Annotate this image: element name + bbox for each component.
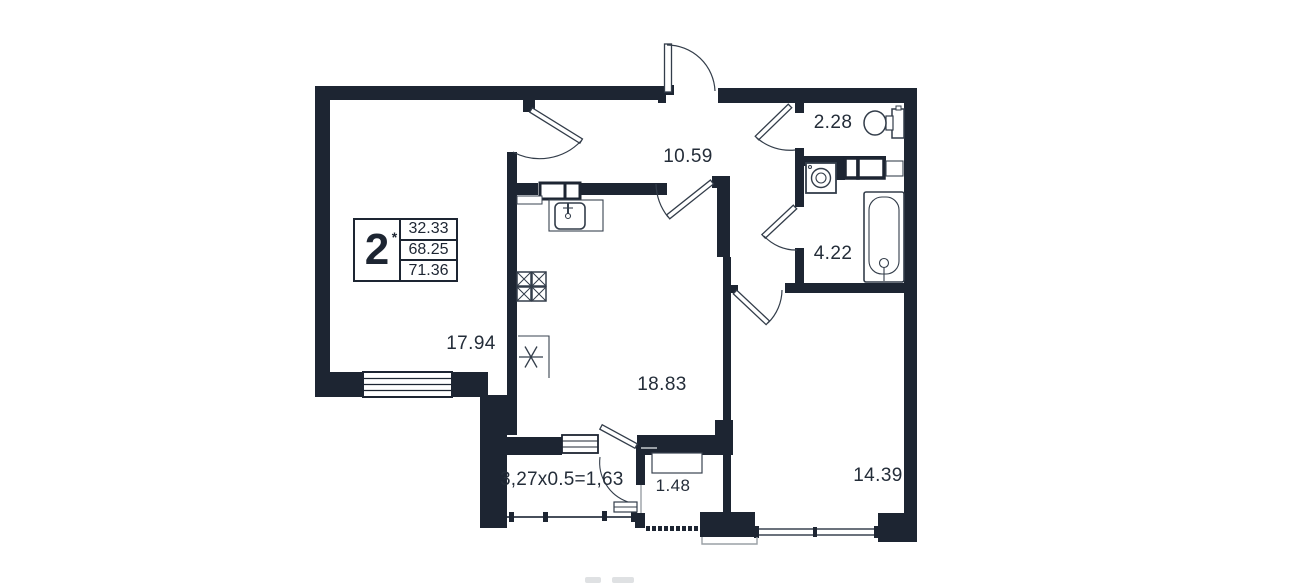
floor-plan-canvas: 10.59 2.28 4.22 17.94 18.83 14.39 1.48 3… <box>0 0 1307 583</box>
wall-segment <box>637 435 723 455</box>
door-leaf <box>667 180 714 219</box>
wc-area-label: 2.28 <box>806 112 860 134</box>
dot <box>682 526 686 531</box>
door-leaf <box>600 425 638 448</box>
wall-segment <box>795 102 804 113</box>
wall-segment <box>315 86 330 397</box>
shelf-outline <box>886 161 903 176</box>
bathroom-area-label: 4.22 <box>806 243 860 265</box>
legend-living-area: 32.33 <box>401 220 456 241</box>
railing-post <box>509 512 514 522</box>
dot <box>694 526 698 531</box>
door-leaf <box>762 205 797 238</box>
dot <box>688 526 692 531</box>
bathroom-door <box>762 205 797 250</box>
legend-areas: 32.33 68.25 71.36 <box>401 220 456 280</box>
living-room-area-label: 17.94 <box>441 333 501 355</box>
wall-segment <box>795 248 804 288</box>
legend-total-area: 71.36 <box>401 261 456 280</box>
faucet-base <box>566 214 571 219</box>
door-arc <box>667 45 715 91</box>
toilet-tank-button <box>896 106 901 110</box>
vent-box <box>565 183 580 199</box>
cabinet-outline <box>517 196 542 204</box>
dot <box>658 526 662 531</box>
wall-segment <box>718 88 917 103</box>
bathtub-drain <box>880 259 889 268</box>
legend-rooms-cell: 2* <box>355 220 401 280</box>
wall-segment <box>452 372 488 397</box>
railing-post <box>631 511 637 522</box>
loggia-area-label: 1.48 <box>650 476 696 496</box>
kitchen-window <box>562 435 598 453</box>
wall-segment <box>636 445 645 485</box>
window-mullion <box>754 526 759 538</box>
living-room-window <box>363 372 452 397</box>
door-arc <box>768 290 782 323</box>
wall-segment <box>717 176 730 257</box>
cutoff-text-artifact <box>612 577 634 583</box>
toilet-bowl <box>864 111 886 135</box>
balcony-area-formula: 3,27x0.5=1,63 <box>500 469 624 491</box>
railing-post <box>543 512 548 522</box>
rooms-count-value: 2 <box>365 225 389 274</box>
dot <box>652 526 656 531</box>
washer-drum-inner <box>816 173 826 183</box>
vent-box <box>540 183 565 199</box>
rooms-count: 2* <box>365 228 389 272</box>
cabinet-box <box>858 158 884 178</box>
kitchen-area-label: 18.83 <box>632 374 692 396</box>
step-line <box>702 537 757 544</box>
wc-door <box>755 104 795 150</box>
kitchen-sink-icon <box>555 203 585 229</box>
lintel-mark <box>641 447 657 449</box>
washing-machine-icon <box>806 163 836 193</box>
bedroom-door <box>733 290 782 325</box>
dot <box>670 526 674 531</box>
bedroom-area-label: 14.39 <box>847 465 909 487</box>
toilet-connector <box>886 116 893 130</box>
loggia-ac-unit <box>652 453 702 473</box>
door-leaf <box>530 108 583 143</box>
door-leaf <box>665 44 672 92</box>
living-room-door <box>513 108 582 159</box>
cabinet-box <box>845 158 858 178</box>
door-leaf <box>733 290 769 324</box>
wall-segment <box>480 395 507 528</box>
door-arc <box>757 138 795 150</box>
wall-segment <box>507 152 517 435</box>
window-frame <box>562 435 598 453</box>
loggia-open-railing-dots <box>646 526 698 531</box>
wall-segment <box>580 183 667 195</box>
door-arc <box>513 141 581 159</box>
cutoff-text-artifact <box>585 577 601 583</box>
wall-segment <box>502 437 562 455</box>
apartment-legend: 2* 32.33 68.25 71.36 <box>353 218 458 282</box>
fridge-snowflake-icon <box>519 347 543 368</box>
railing-post <box>602 511 607 521</box>
dot <box>664 526 668 531</box>
rooms-note-mark: * <box>392 230 397 244</box>
bedroom-window <box>754 526 879 538</box>
entrance-door <box>665 44 716 92</box>
legend-apartment-area: 68.25 <box>401 241 456 262</box>
wall-segment <box>315 372 363 397</box>
stove-icon <box>517 272 546 301</box>
wall-segment <box>315 86 666 100</box>
bathroom-cabinets <box>845 158 903 178</box>
balcony-railing <box>507 511 637 522</box>
hallway-area-label: 10.59 <box>653 146 723 168</box>
dot <box>646 526 650 531</box>
toilet-tank <box>892 109 904 138</box>
wall-segment <box>878 513 917 542</box>
dot <box>676 526 680 531</box>
window-mullion <box>813 527 817 537</box>
wall-segment <box>700 512 755 537</box>
toilet-icon <box>864 106 904 138</box>
window-mullion <box>874 526 879 538</box>
wall-segment <box>904 88 917 520</box>
wall-segment <box>517 183 538 195</box>
wall-segment <box>723 257 731 515</box>
door-arc <box>764 236 797 250</box>
door-leaf <box>755 104 792 140</box>
bathtub-icon <box>864 192 904 282</box>
washer-knob <box>809 166 812 169</box>
